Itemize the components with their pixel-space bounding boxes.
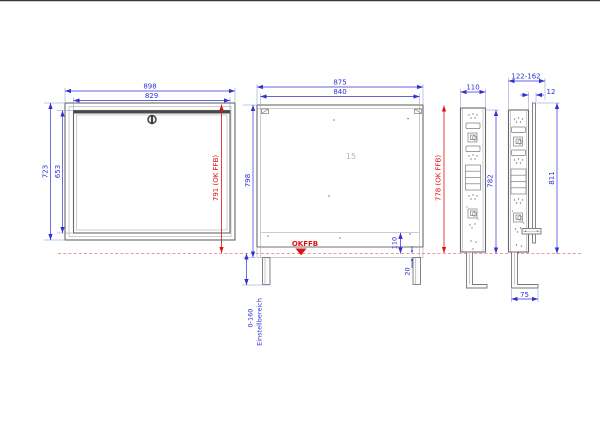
side2-wall-rail <box>533 103 536 243</box>
dim-open-plate-height: 110 <box>391 237 399 249</box>
front-view <box>65 103 235 240</box>
open-view-dimensions: 875 840 798 778 (OK FFB) 110 20 OKFFB 0-… <box>242 79 444 346</box>
dim-open-width-outer: 875 <box>333 79 346 87</box>
side-view-1 <box>461 108 488 288</box>
dim-side2-rail-offset: 12 <box>547 88 556 96</box>
dim-side2-foot: 75 <box>520 291 529 299</box>
dim-open-base-depth: 20 <box>404 267 412 275</box>
dim-front-height-outer: 723 <box>42 165 50 178</box>
dim-side2-depth-range: 122-162 <box>511 73 540 81</box>
front-door-inner-line <box>77 115 228 230</box>
dim-open-height-floor: 778 (OK FFB) <box>435 155 443 201</box>
dim-front-width-inner: 829 <box>145 92 158 100</box>
side2-leg <box>512 252 539 288</box>
dim-front-height-floor: 791 (OK FFB) <box>212 155 220 201</box>
open-outer-frame <box>257 105 423 247</box>
front-door <box>74 111 231 234</box>
adjust-range-label: 0-160 <box>247 309 255 328</box>
lock-icon <box>148 116 156 124</box>
adjust-name-label: Einstellbereich <box>256 298 264 346</box>
corner-bracket-right <box>415 109 422 114</box>
corner-bracket-left <box>262 109 269 114</box>
dim-front-height-inner: 653 <box>54 165 62 178</box>
side-view-2 <box>509 103 542 288</box>
open-view-legs <box>263 258 421 285</box>
dim-side1-depth: 110 <box>466 84 479 92</box>
side1-body <box>461 108 486 252</box>
front-view-dimensions: 898 829 723 653 791 (OK FFB) <box>42 83 236 254</box>
dim-side1-height: 782 <box>487 174 495 187</box>
dim-open-width-inner: 840 <box>333 88 346 96</box>
front-door-top-band <box>74 111 231 114</box>
dim-front-width-outer: 898 <box>143 83 156 91</box>
okffb-marker-icon <box>296 249 307 256</box>
okffb-label: OKFFB <box>292 240 318 248</box>
dim-open-height: 798 <box>244 174 252 187</box>
dim-side2-height: 811 <box>548 171 556 184</box>
knockout-pattern <box>466 113 481 249</box>
side2-support-bracket <box>522 229 541 235</box>
open-view: 15 <box>257 105 423 285</box>
front-inner-frame <box>69 107 231 237</box>
side-view-1-dimensions: 110 782 <box>461 84 500 254</box>
watermark-15: 15 <box>346 152 356 161</box>
technical-drawing-canvas: 898 829 723 653 791 (OK FFB) <box>0 0 600 424</box>
